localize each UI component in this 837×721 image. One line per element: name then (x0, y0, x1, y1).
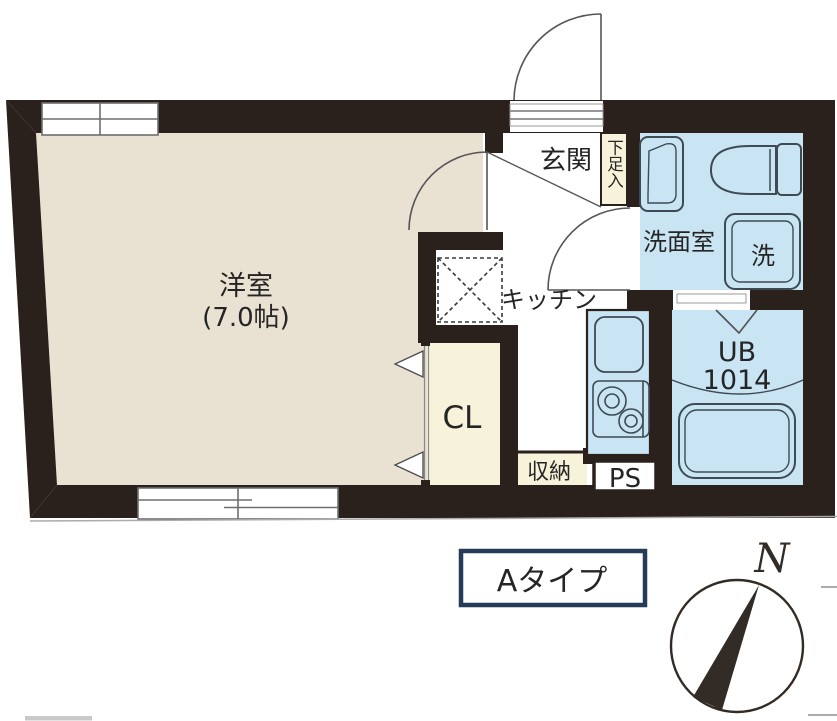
top-window (42, 103, 158, 135)
closet-label: CL (443, 400, 483, 436)
kitchen-nook-wall (418, 250, 436, 327)
kitchen-label: キッチン (501, 286, 597, 314)
washer-label: 洗 (751, 242, 775, 270)
entrance-threshold (510, 101, 603, 132)
wet-mid-wall-left (627, 290, 673, 310)
pipe-space-label: PS (609, 464, 641, 494)
compass-north-label: N (754, 536, 792, 582)
main-room-label: 洋室 (219, 271, 273, 302)
hall-room-wall (418, 232, 503, 250)
bath-threshold (673, 291, 750, 309)
washroom-label: 洗面室 (643, 228, 715, 256)
bottom-left-artifact (25, 716, 92, 721)
unit-bath-label: UB (718, 337, 756, 368)
bottom-window (138, 488, 338, 519)
compass: N (671, 536, 803, 712)
compass-needle (693, 585, 759, 710)
entrance-door (514, 14, 601, 100)
floor-plan-drawing: 洋室 (7.0帖) 玄関 キッチン 洗面室 洗 UB 1014 CL 収納 PS… (0, 0, 837, 721)
unit-bath-size-label: 1014 (703, 365, 772, 396)
vanity-basin (640, 137, 683, 211)
type-label-box: Aタイプ (461, 551, 645, 605)
closet-right-wall (500, 325, 518, 485)
main-room-size-label: (7.0帖) (202, 303, 290, 333)
shoe-cabinet-label: 下足入 (605, 139, 624, 189)
toilet-tank (777, 144, 801, 195)
closet-top-wall (418, 325, 503, 343)
floor-plan-page: 洋室 (7.0帖) 玄関 キッチン 洗面室 洗 UB 1014 CL 収納 PS… (0, 0, 837, 721)
right-wall (803, 100, 835, 518)
entry-stub-wall (485, 133, 503, 153)
washroom-left-wall (627, 133, 640, 207)
entrance-label: 玄関 (540, 146, 592, 176)
type-label: Aタイプ (497, 564, 608, 599)
storage-label: 収納 (527, 460, 571, 485)
kitchen-counter (587, 310, 650, 455)
washroom-door (548, 208, 630, 290)
refrigerator-space (438, 258, 502, 322)
toilet (711, 144, 801, 195)
wet-mid-wall-right (750, 290, 803, 310)
toilet-bowl (711, 146, 776, 194)
